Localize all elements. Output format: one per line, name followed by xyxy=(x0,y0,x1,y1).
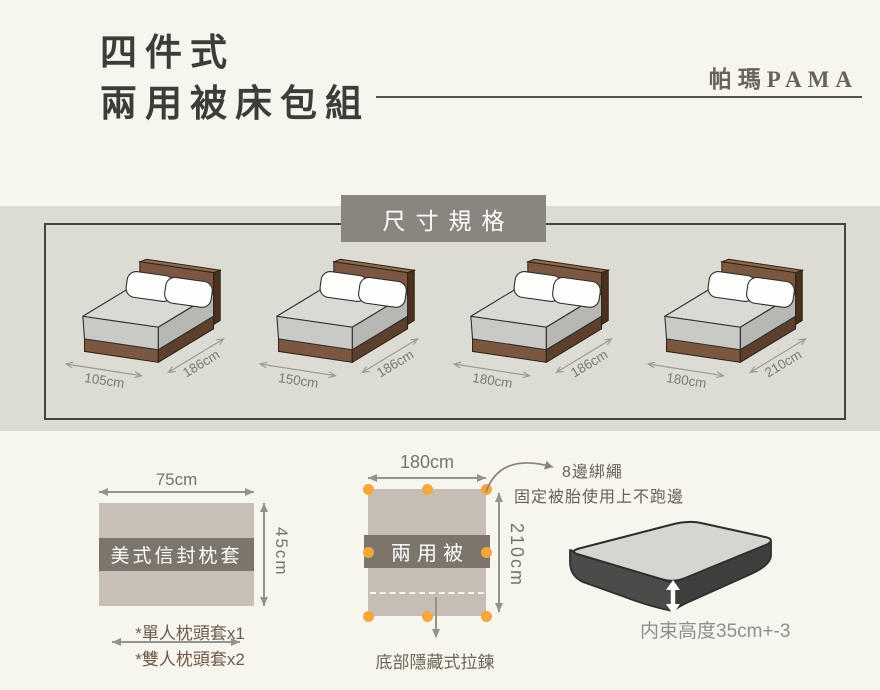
tie-dot-bottom-middle xyxy=(422,611,433,622)
bed-length-label: 186cm xyxy=(180,347,222,381)
pillowcase-diagram: 75cm 美式信封枕套 45cm *單人枕頭套x1 *雙人枕頭套x2 xyxy=(95,470,305,690)
page-title-line2: 兩用被床包組 xyxy=(100,79,370,130)
pillowcase-height-label: 45cm xyxy=(271,527,291,577)
bed-length-label: 186cm xyxy=(568,347,610,381)
bed-width-label: 180cm xyxy=(471,370,513,391)
tie-dot-middle-right xyxy=(481,547,492,558)
mattress-depth-note: 内束高度35cm+-3 xyxy=(640,616,790,643)
tie-note-title: 8邊綁繩 xyxy=(562,458,623,482)
duvet-zipper-arrow xyxy=(435,597,437,637)
duvet-width-label: 180cm xyxy=(368,452,486,473)
pillowcase-height-arrow xyxy=(263,503,265,606)
brand-logo: 帕瑪PAMA xyxy=(709,60,858,94)
bed-illustration-king: 180cm 210cm xyxy=(638,240,814,395)
bed-drawing: 180cm 186cm xyxy=(444,240,620,395)
duvet-height-arrow xyxy=(498,493,500,612)
duvet-zipper-dashed-line xyxy=(370,592,484,594)
duvet-width-arrow xyxy=(368,477,486,479)
bed-length-label: 186cm xyxy=(374,347,416,381)
page-title-line1: 四件式 xyxy=(100,28,370,79)
size-spec-heading: 尺寸規格 xyxy=(341,195,546,242)
duvet-height-label: 210cm xyxy=(506,523,527,587)
bed-drawing: 180cm 210cm xyxy=(638,240,814,395)
pillowcase-note-double: *雙人枕頭套x2 xyxy=(95,645,285,670)
tie-dot-top-left xyxy=(363,484,374,495)
bed-drawing: 105cm 186cm xyxy=(56,240,232,395)
bed-drawing: 150cm 186cm xyxy=(250,240,426,395)
bed-illustration-queen: 180cm 186cm xyxy=(444,240,620,395)
bed-width-label: 180cm xyxy=(665,370,707,391)
page-title: 四件式 兩用被床包組 xyxy=(100,28,370,130)
bed-width-label: 105cm xyxy=(83,370,125,391)
pillowcase-width-label: 75cm xyxy=(99,470,254,490)
pillowcase-note-arrow xyxy=(112,641,240,643)
mattress-illustration xyxy=(555,505,790,620)
bed-illustration-double: 150cm 186cm xyxy=(250,240,426,395)
tie-dot-bottom-right xyxy=(481,611,492,622)
tie-dot-middle-left xyxy=(363,547,374,558)
bed-length-label: 210cm xyxy=(762,347,804,381)
infographic-page: 四件式 兩用被床包組 帕瑪PAMA 尺寸規格 105cm 186cm xyxy=(0,0,880,690)
tie-note-desc: 固定被胎使用上不跑邊 xyxy=(514,483,684,507)
header-divider xyxy=(376,96,862,98)
bed-width-label: 150cm xyxy=(277,370,319,391)
tie-dot-top-middle xyxy=(422,484,433,495)
bed-illustration-single: 105cm 186cm xyxy=(56,240,232,395)
pillowcase-width-arrow xyxy=(99,491,254,493)
duvet-name-band: 兩用被 xyxy=(364,535,490,568)
pillowcase-name-band: 美式信封枕套 xyxy=(99,538,254,571)
tie-dot-bottom-left xyxy=(363,611,374,622)
duvet-zipper-note: 底部隱藏式拉鍊 xyxy=(325,648,545,673)
